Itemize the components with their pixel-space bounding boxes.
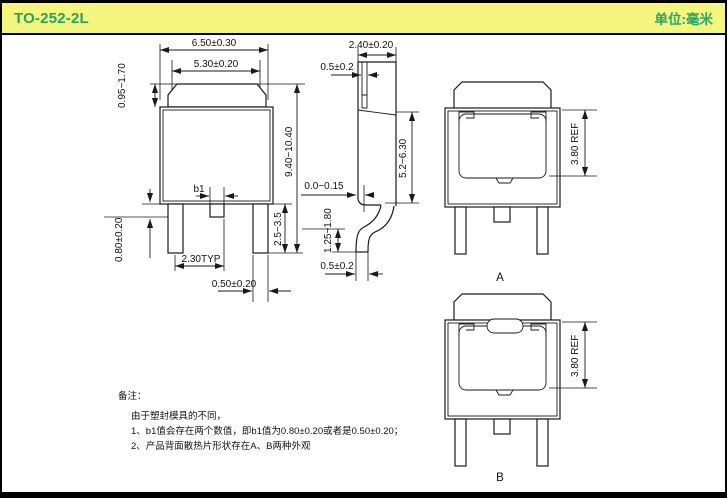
dim-tab-top-width-label: 5.30±0.20 [194,59,239,70]
dim-total-height-label: 9.40~10.40 [284,126,295,177]
dim-tab-width-label: 6.50±0.30 [192,38,237,49]
view-a-mold-outline [454,82,551,108]
notes: 备注： 由于塑封模具的不同， 1、b1值会存在两个数值，即b1值为0.80±0.… [118,390,403,452]
note-line: 2、产品背面散热片形状存在A、B两种外观 [131,440,311,452]
view-a-left-lead [455,207,466,254]
notes-title: 备注： [118,390,147,402]
front-right-lead [253,204,268,253]
technical-drawing: 6.50±0.30 5.30±0.20 0.95~1.70 b1 [0,0,727,498]
dim-lead-pitch-label: 2.30TYP [182,254,221,265]
view-a-right-lead [537,207,548,254]
note-line: 由于塑封模具的不同， [131,410,226,422]
page-title: TO-252-2L [14,10,89,27]
view-a-label: A [496,272,504,284]
note-line: 1、b1值会存在两个数值，即b1值为0.80±0.20或者是0.50±0.20； [131,425,403,437]
view-b-mold-outline [454,294,551,320]
front-body-outline [160,107,273,204]
side-body-outline [358,62,396,206]
view-b-left-lead [455,419,466,466]
dim-stub-length-label: 0.80±0.20 [114,217,125,262]
view-b-slot [487,319,523,333]
front-view: 6.50±0.30 5.30±0.20 0.95~1.70 b1 [104,38,305,302]
front-left-lead [168,204,183,253]
view-a-center-stub [494,207,510,222]
dim-thickness-label: 2.40±0.20 [349,40,394,51]
dim-lead-length-label: 2.5~3.5 [273,212,284,246]
dim-tab-height-label: 0.95~1.70 [117,63,128,108]
view-a-pad-height-label: 3.80 REF [570,123,581,165]
datasheet-page: TO-252-2L 单位:毫米 6.50±0.30 5.30±0.20 0.95… [0,0,727,498]
dim-lead-width-label: 0.50±0.20 [212,279,257,290]
side-lead-outer [368,206,394,252]
dim-body-height-label: 5.2~6.30 [398,138,409,178]
side-tab-line [362,62,367,108]
front-tab-outline [168,84,266,107]
view-a: 3.80 REF A [445,82,597,284]
view-b-right-lead [537,419,548,466]
view-a-plate [445,108,560,207]
view-b-label: B [496,472,504,484]
front-center-stub [210,204,224,217]
dim-tab-thickness-label: 0.5±0.2 [320,62,354,73]
dim-standoff-label: 0.0~0.15 [304,181,344,192]
header: TO-252-2L 单位:毫米 [2,3,725,35]
dim-foot-height-label: 1.25~1.80 [323,208,334,253]
dim-b1-label: b1 [193,184,205,195]
side-view: 2.40±0.20 0.5±0.2 5.2~6.30 0.0~0.15 [301,40,419,281]
view-b-center-stub [494,419,510,434]
view-b-pad-height-label: 3.80 REF [570,335,581,377]
view-b: 3.80 REF B [445,294,597,484]
view-b-plate [445,320,560,419]
dim-lead-thickness-label: 0.5±0.2 [320,261,354,272]
unit-label: 单位:毫米 [655,8,714,28]
